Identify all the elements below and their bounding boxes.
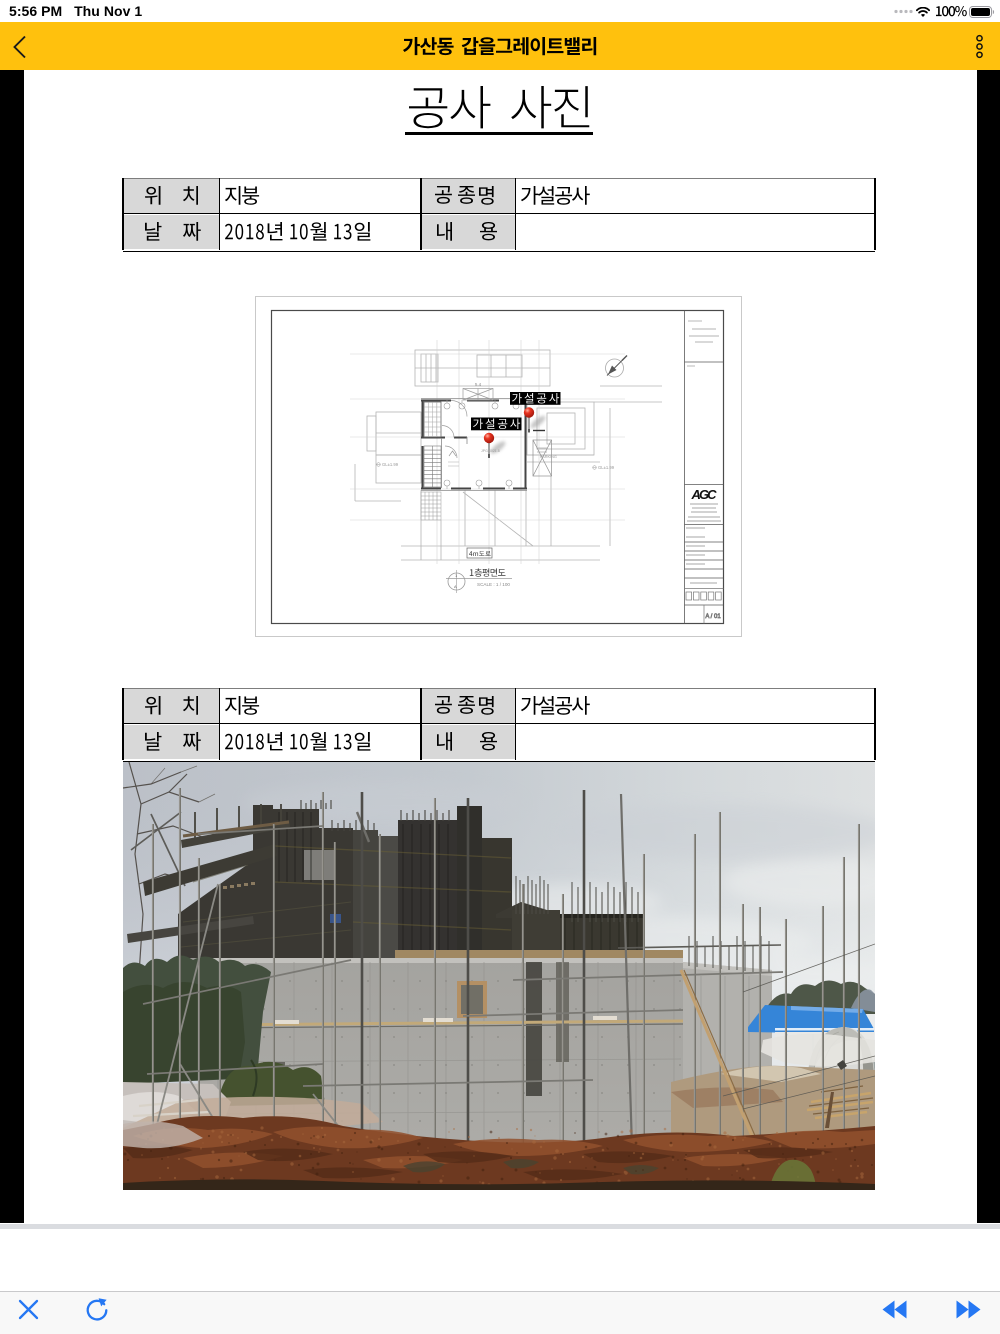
svg-text:GL±1.99: GL±1.99 bbox=[598, 465, 615, 470]
svg-text:PARKING: PARKING bbox=[540, 455, 557, 459]
svg-text:A: A bbox=[454, 584, 457, 589]
svg-text:5.4: 5.4 bbox=[475, 382, 482, 387]
svg-text:GL±1.99: GL±1.99 bbox=[382, 462, 399, 467]
svg-text:A / 01: A / 01 bbox=[705, 614, 721, 620]
svg-text:SCALE : 1 / 100: SCALE : 1 / 100 bbox=[477, 582, 510, 587]
svg-text:AGC: AGC bbox=[691, 487, 718, 502]
svg-text:JPG-0021.8: JPG-0021.8 bbox=[481, 449, 500, 453]
